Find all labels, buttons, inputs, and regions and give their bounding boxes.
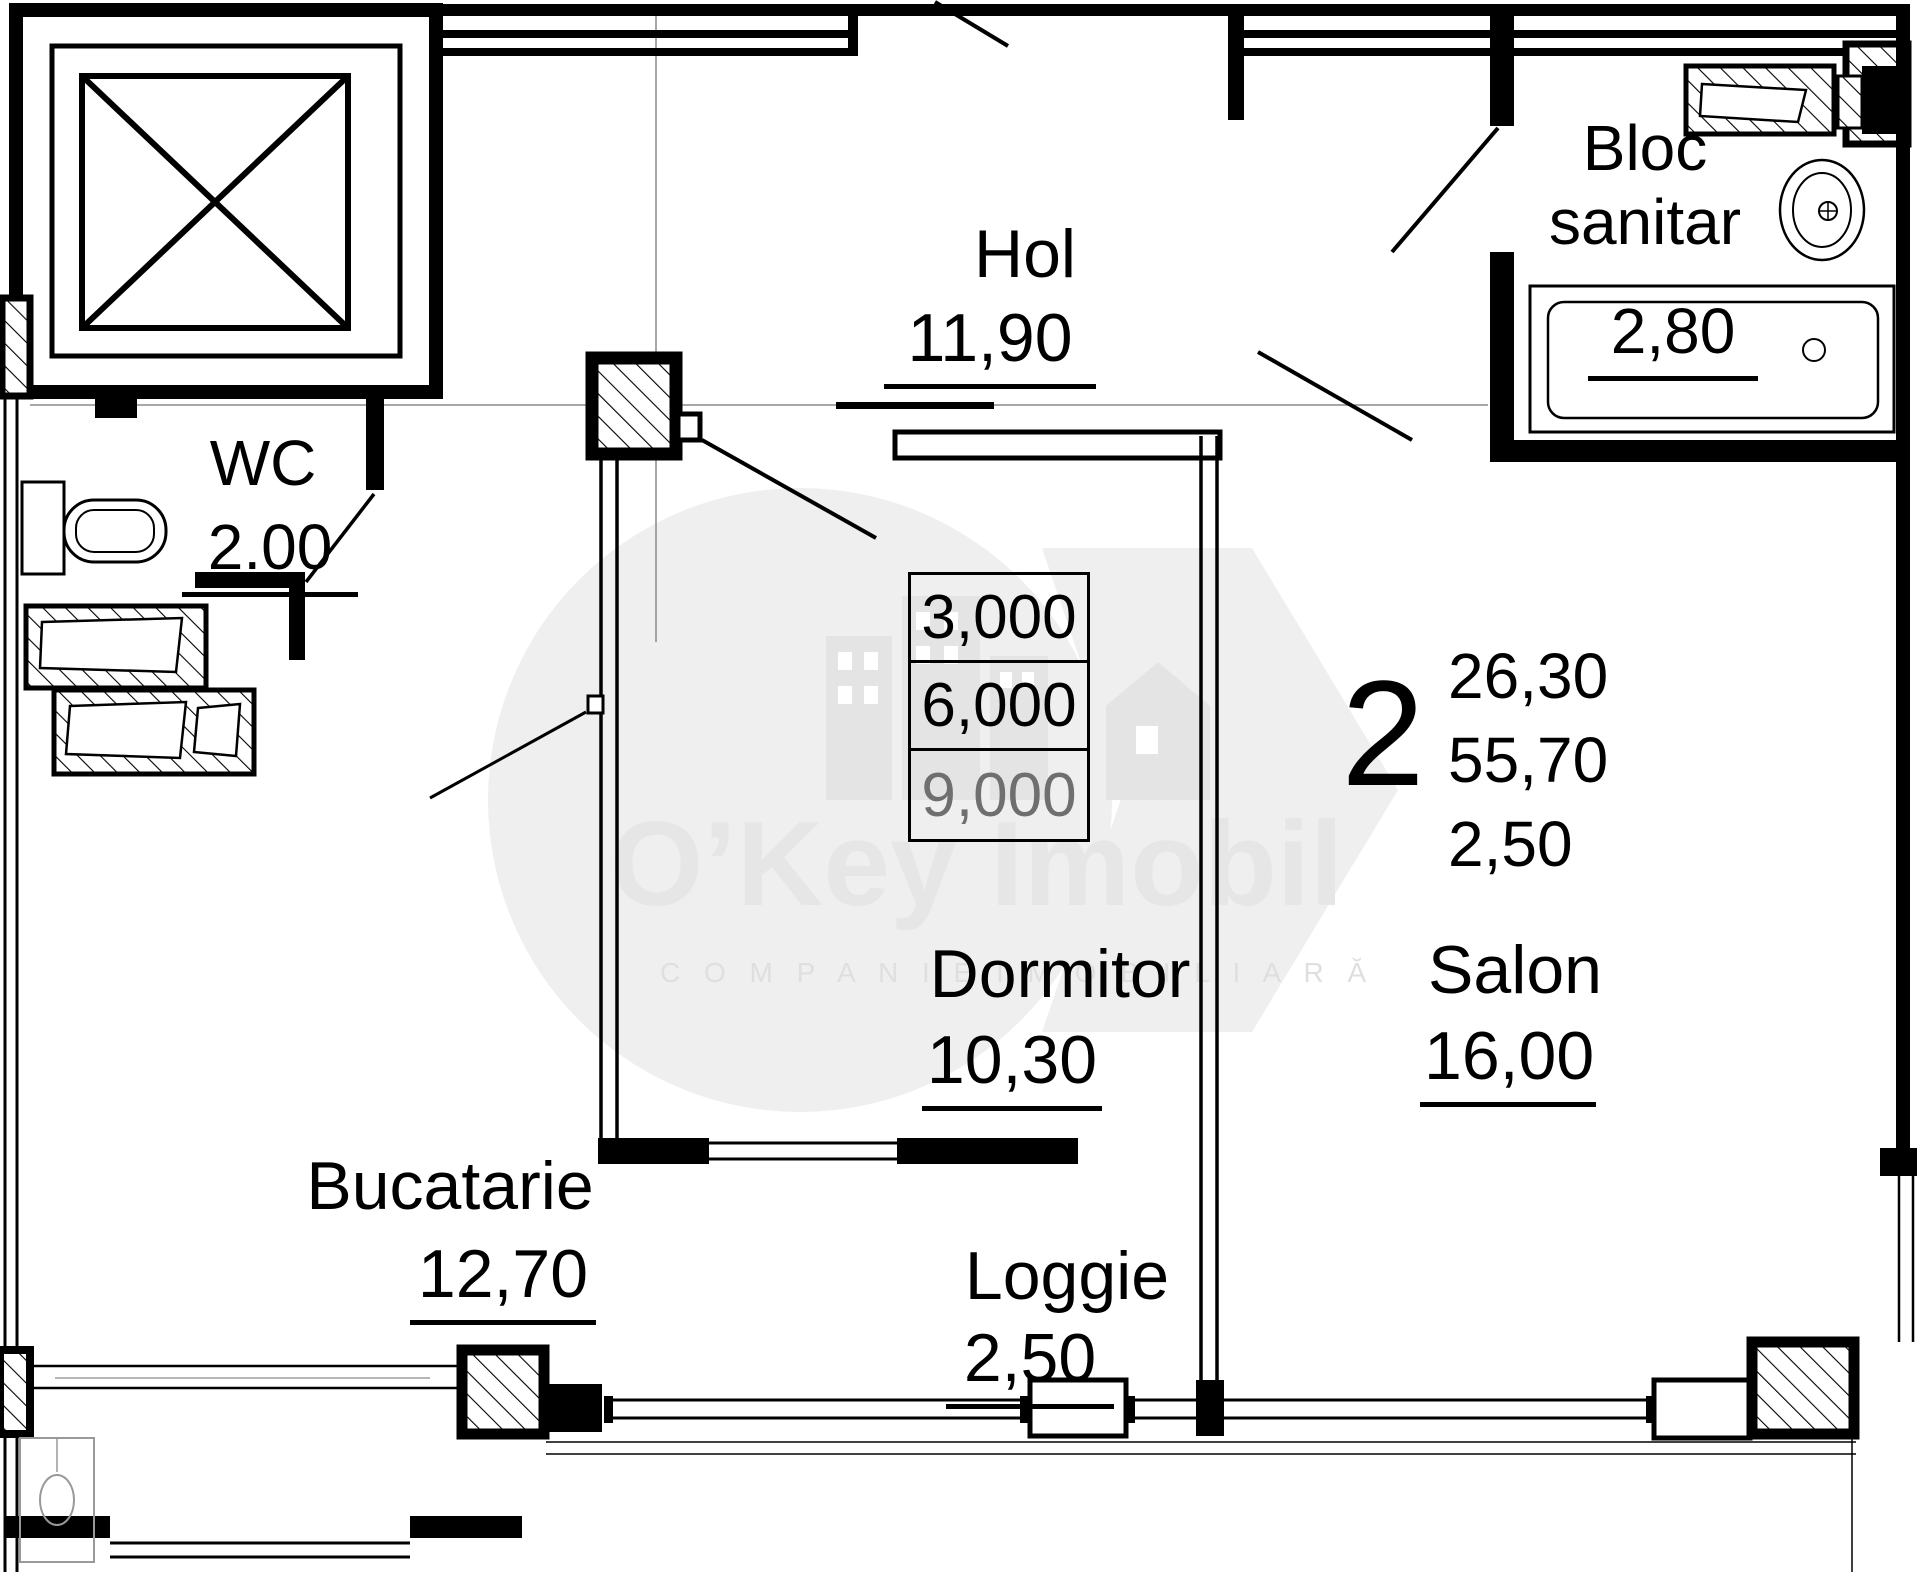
room-label-bucatarie: Bucatarie xyxy=(240,1148,660,1224)
bathroom-door-swing xyxy=(1392,128,1498,252)
kitchen-sink-faint-icon xyxy=(20,1438,94,1562)
dimension-row: 9,000 xyxy=(911,751,1087,839)
apartment-rooms-count: 2 xyxy=(1318,658,1448,808)
apartment-loggia-area: 2,50 xyxy=(1448,802,1688,886)
room-label-wc: WC xyxy=(168,428,358,500)
apartment-summary: 26,30 55,70 2,50 xyxy=(1448,634,1688,886)
room-area-bucatarie: 12,70 xyxy=(410,1236,596,1325)
apartment-total-area: 55,70 xyxy=(1448,718,1688,802)
room-area-bloc-sanitar: 2,80 xyxy=(1588,296,1758,381)
room-area-salon: 16,00 xyxy=(1420,1018,1596,1107)
dimension-table: 3,000 6,000 9,000 xyxy=(908,572,1090,842)
column-hatched xyxy=(0,1350,30,1434)
dimension-row: 3,000 xyxy=(911,575,1087,663)
room-area-wc: 2.00 xyxy=(182,512,358,597)
column-hatched xyxy=(2,298,30,396)
loggia-walls xyxy=(598,1138,1078,1164)
toilet-icon xyxy=(22,482,166,574)
room-area-dormitor: 10,30 xyxy=(922,1022,1102,1111)
dimension-row: 6,000 xyxy=(911,663,1087,751)
room-label-bloc-sanitar: Bloc sanitar xyxy=(1490,112,1800,259)
salon-door-swing xyxy=(1258,352,1412,440)
column-hatched xyxy=(1752,1342,1854,1434)
room-area-loggie: 2,50 xyxy=(946,1320,1114,1409)
appliance-boxes xyxy=(26,606,254,774)
window-pillar xyxy=(1654,1380,1750,1438)
room-label-loggie: Loggie xyxy=(912,1238,1222,1314)
column-hatched xyxy=(462,1350,544,1434)
room-label-hol: Hol xyxy=(905,216,1145,292)
room-label-dormitor: Dormitor xyxy=(860,936,1260,1012)
elevator-shaft xyxy=(2,10,436,418)
room-label-salon: Salon xyxy=(1390,932,1640,1008)
floor-plan: O’Key Imobil C O M P A N I E I M O B I L… xyxy=(0,0,1917,1572)
wall-marker xyxy=(588,696,603,713)
room-area-hol: 11,90 xyxy=(884,300,1096,389)
column-hatched xyxy=(592,358,676,454)
door-hinge-plate xyxy=(678,414,700,440)
apartment-living-area: 26,30 xyxy=(1448,634,1688,718)
